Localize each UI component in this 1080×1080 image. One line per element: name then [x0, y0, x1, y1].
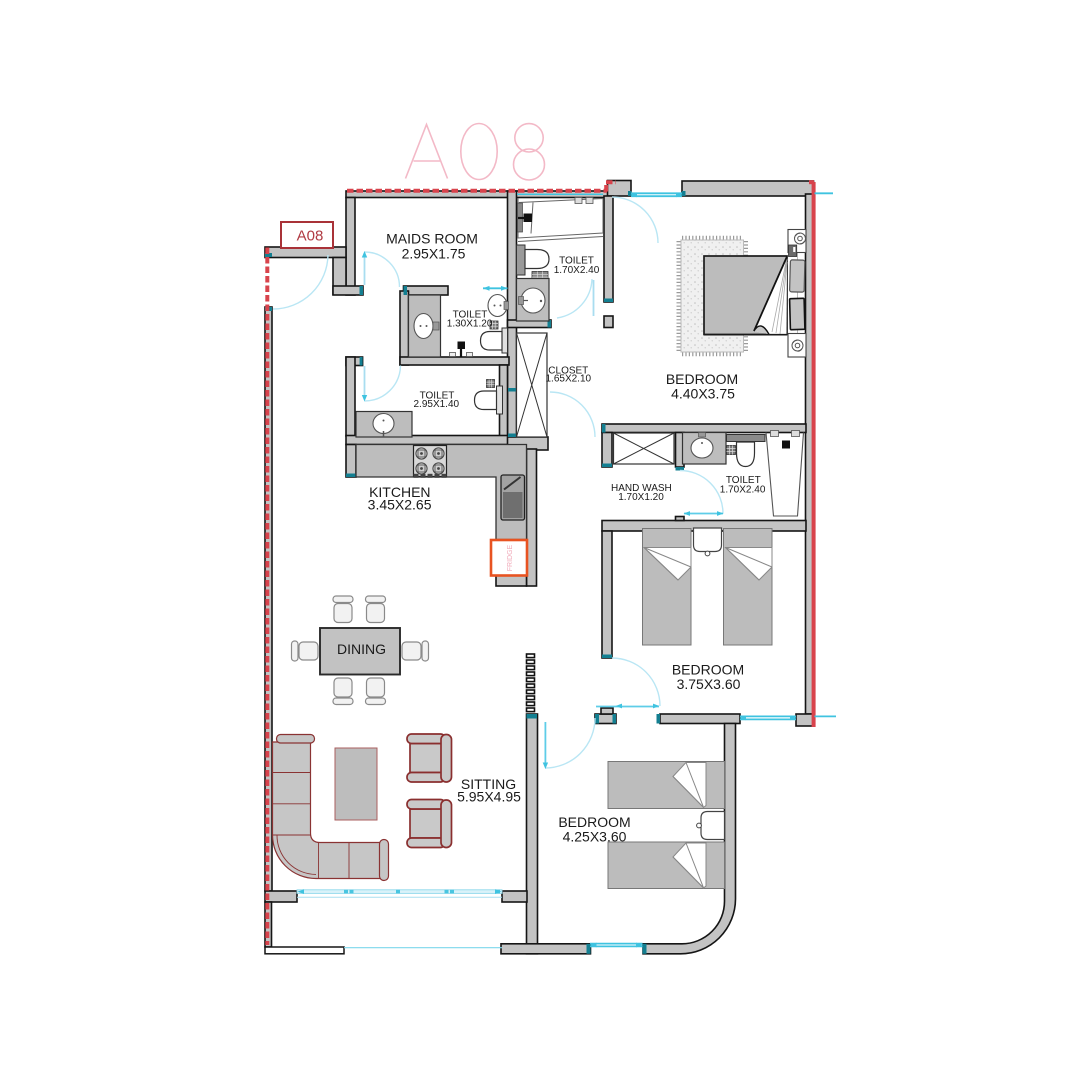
svg-text:2.95X1.40: 2.95X1.40 — [413, 399, 459, 410]
svg-text:1.65X2.10: 1.65X2.10 — [545, 374, 591, 385]
svg-text:3.45X2.65: 3.45X2.65 — [368, 497, 432, 513]
svg-text:4.40X3.75: 4.40X3.75 — [671, 385, 735, 401]
svg-text:5.95X4.95: 5.95X4.95 — [457, 788, 521, 804]
svg-text:FRIDGE: FRIDGE — [507, 544, 514, 571]
svg-text:3.75X3.60: 3.75X3.60 — [677, 676, 741, 692]
svg-text:1.30X1.20: 1.30X1.20 — [447, 319, 493, 330]
svg-text:DINING: DINING — [337, 641, 386, 657]
svg-text:4.25X3.60: 4.25X3.60 — [563, 828, 627, 844]
svg-text:A08: A08 — [297, 228, 324, 245]
svg-text:2.95X1.75: 2.95X1.75 — [402, 246, 466, 262]
svg-text:1.70X1.20: 1.70X1.20 — [618, 492, 664, 503]
svg-text:1.70X2.40: 1.70X2.40 — [554, 265, 600, 276]
svg-text:MAIDS ROOM: MAIDS ROOM — [386, 231, 478, 247]
svg-text:1.70X2.40: 1.70X2.40 — [720, 485, 766, 496]
